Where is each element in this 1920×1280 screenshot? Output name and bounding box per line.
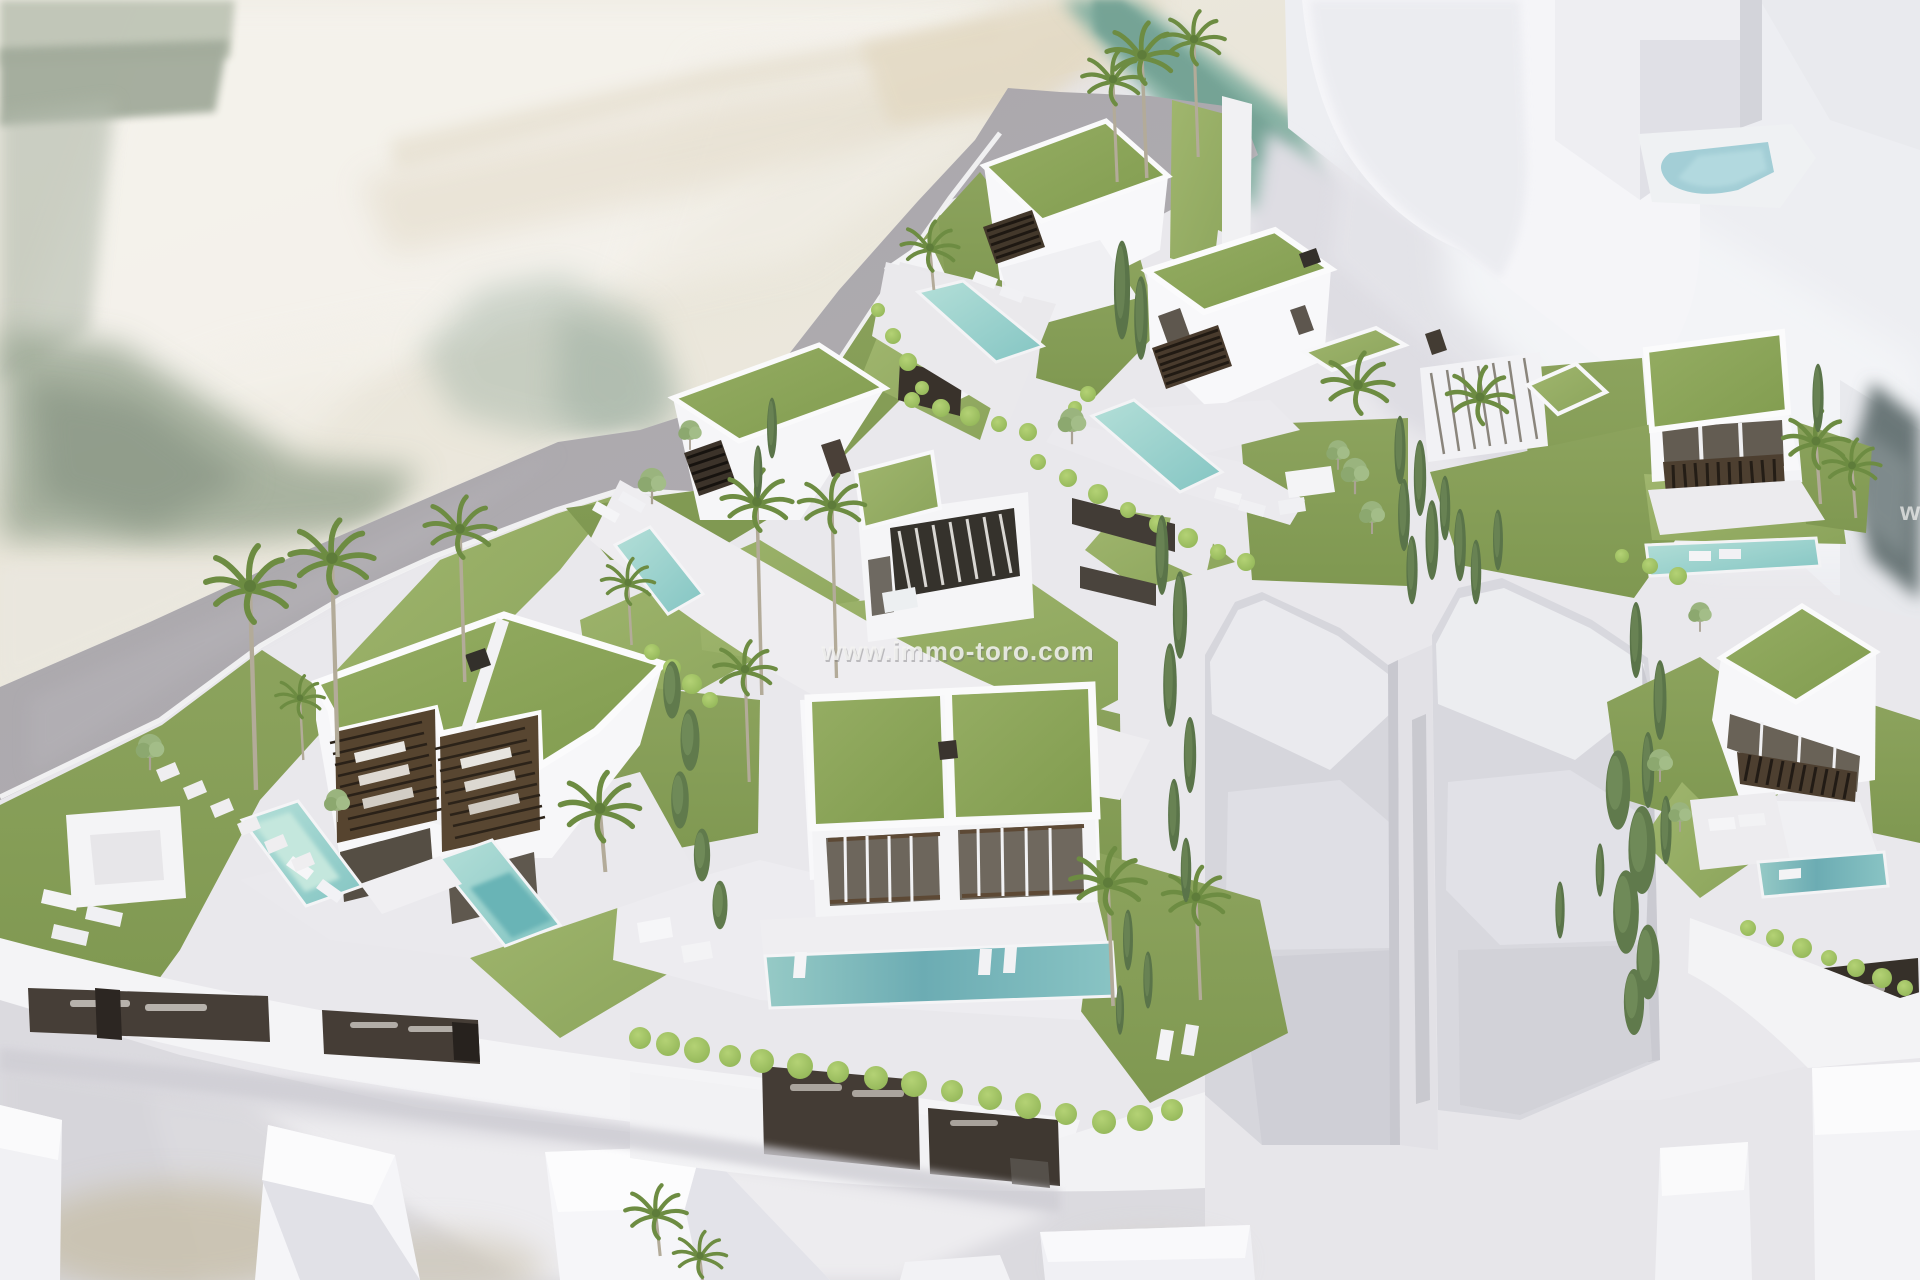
svg-text:www.im: www.im <box>1899 496 1920 526</box>
svg-text:www.immo-toro.com: www.immo-toro.com <box>820 636 1094 666</box>
